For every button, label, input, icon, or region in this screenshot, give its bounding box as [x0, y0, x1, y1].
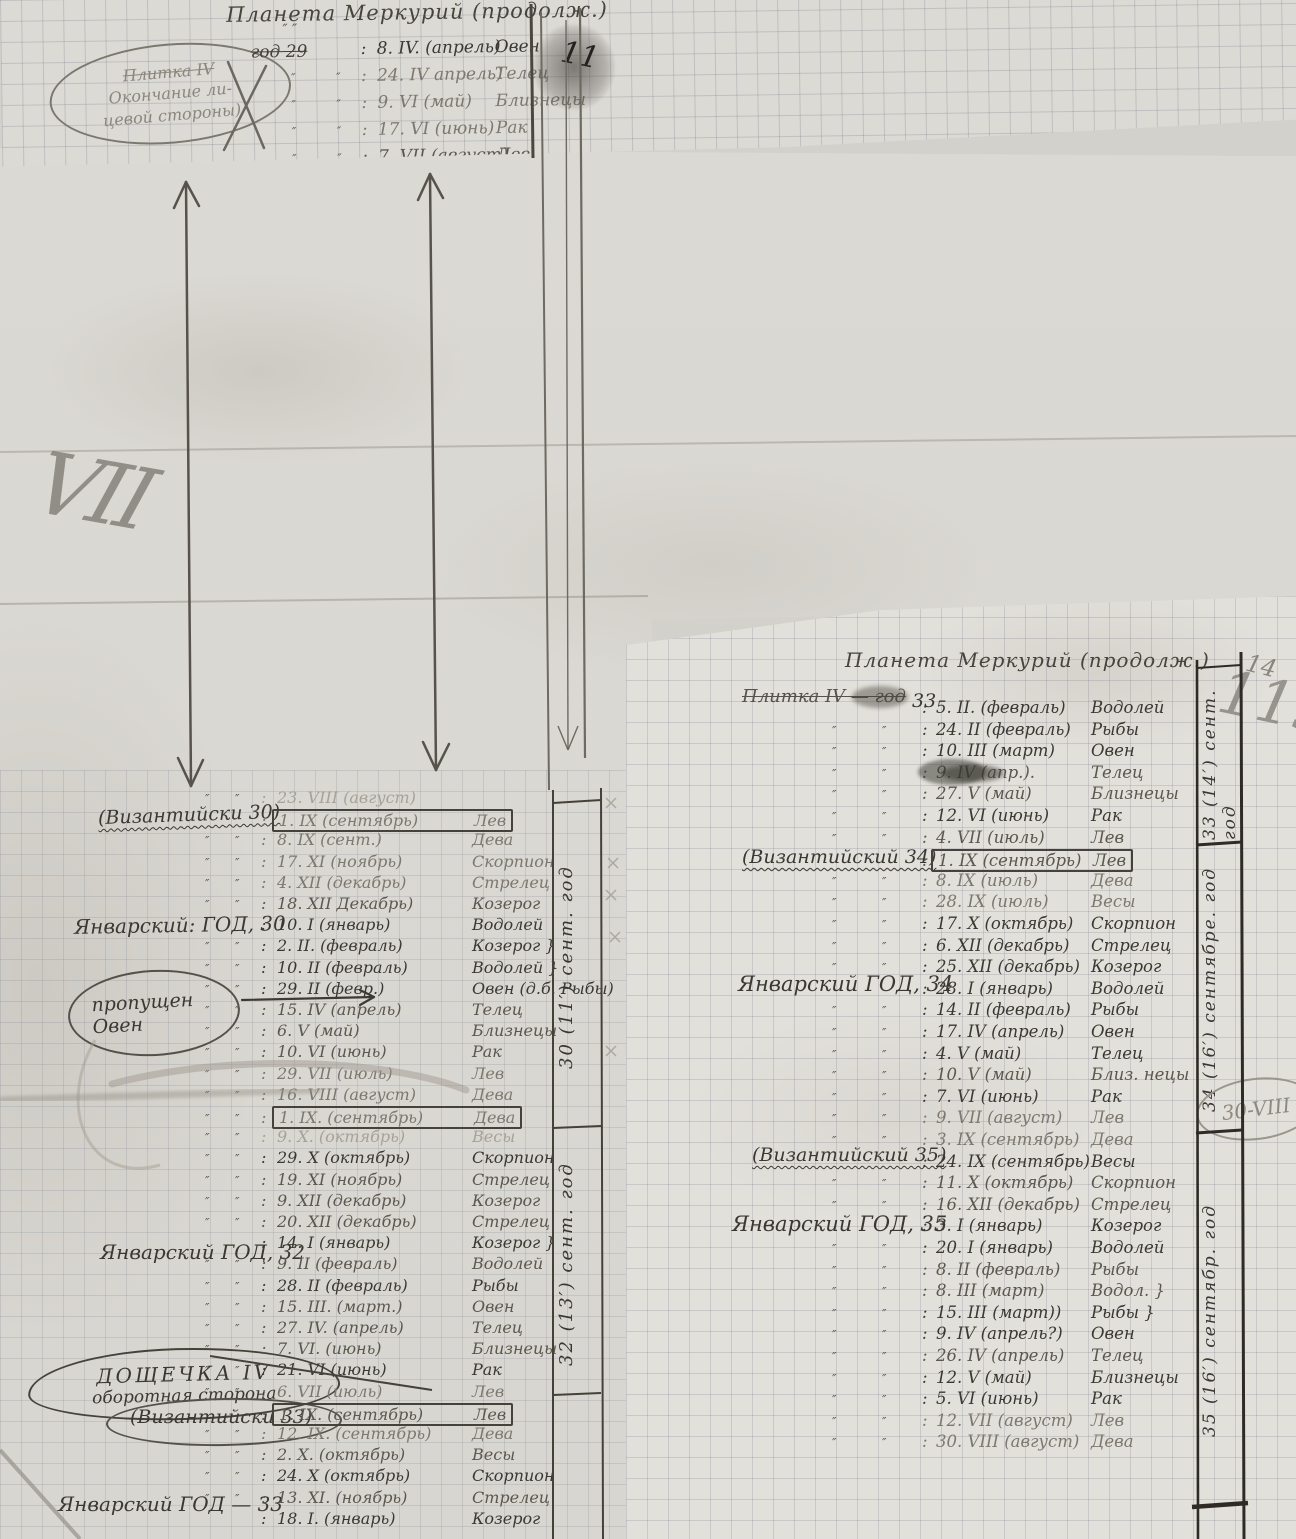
colon-separator: : — [922, 1216, 936, 1235]
ditto-mark: ″ — [882, 724, 922, 738]
colon-separator: : — [261, 1424, 277, 1443]
colon-separator: : — [922, 1346, 936, 1365]
table-row: ″″:10. V (май)Близ. нецы — [832, 1065, 1189, 1087]
zodiac-sign: Рыбы — [1091, 1000, 1139, 1019]
entry-date: 7. VI (июнь) — [936, 1087, 1091, 1106]
colon-separator: : — [922, 1195, 936, 1214]
entry: 3. I (январь)Козерог — [936, 1216, 1161, 1235]
zodiac-sign: Водолей — [1091, 1238, 1164, 1257]
ditto-mark: ″ — [882, 1004, 922, 1018]
entry: 17. IV (апрель)Овен — [936, 1022, 1135, 1041]
entry-date: 28. I (январь) — [936, 979, 1091, 998]
table-row: ″″:7. VI (июнь)Рак — [832, 1087, 1122, 1109]
zodiac-sign: Телец — [1091, 1346, 1144, 1365]
zodiac-sign: Овен — [472, 1297, 514, 1316]
ditto-mark: ″ — [235, 940, 261, 954]
ditto-mark: ″ — [205, 1131, 235, 1145]
table-row: :18. I. (январь)Козерог — [205, 1509, 540, 1530]
ditto-mark: ″ — [832, 875, 882, 889]
margin-label-year-30: 30 (11′) сент. год — [556, 812, 577, 1122]
zodiac-sign: Рак — [472, 1042, 502, 1061]
zodiac-sign: Стрелец — [472, 1170, 550, 1189]
ditto-mark: ″ — [235, 962, 261, 976]
ditto-mark: ″ — [235, 1046, 261, 1060]
entry-date: 8. IX (июль) — [936, 871, 1091, 890]
entry: 9. IV (апр.).Телец — [936, 763, 1144, 782]
colon-separator: : — [922, 806, 936, 825]
ditto-mark: ″ — [832, 918, 882, 932]
table-row: ″″:11. X (октябрь)Скорпион — [832, 1173, 1176, 1195]
entry: 17. XI (ноябрь)Скорпион — [277, 852, 554, 871]
colon-separator: : — [922, 828, 936, 847]
colon-separator: : — [362, 120, 378, 140]
table-row: ″″:9. IV (апр.).Телец — [832, 763, 1144, 785]
margin-label-year-34: 34 (16′) сентябре. год — [1200, 850, 1220, 1128]
ditto-mark: ″ — [832, 1328, 882, 1342]
entry: 12. V (май)Близнецы — [936, 1368, 1179, 1387]
zodiac-sign: Близнецы — [1091, 784, 1179, 803]
zodiac-sign: Дева — [1091, 871, 1134, 890]
ditto-mark: ″ — [832, 1372, 882, 1386]
ditto-mark: ″ — [832, 1177, 882, 1191]
table-row: :28. I (январь)Водолей — [832, 979, 1164, 1001]
ditto-mark: ″ — [832, 1393, 882, 1407]
entry: 15. IV (апрель)Телец — [277, 1000, 523, 1019]
ditto-mark: ″ — [205, 1112, 235, 1126]
colon-separator: : — [361, 39, 377, 59]
table-row: :10. I (январь)Водолей — [205, 915, 543, 936]
ditto-mark: ″ — [832, 1199, 882, 1213]
entry-date: 19. XI (ноябрь) — [277, 1170, 472, 1189]
entry: 9. II (февраль)Водолей — [277, 1254, 543, 1273]
table-row: ″″:19. XI (ноябрь)Стрелец — [205, 1170, 550, 1191]
ditto-mark: ″ — [882, 788, 922, 802]
table-row: ″″:12. VII (август)Лев — [832, 1411, 1124, 1433]
zodiac-sign: Водолей — [1091, 698, 1164, 717]
colon-separator: : — [261, 1021, 277, 1040]
entry-date: 17. XI (ноябрь) — [277, 852, 472, 871]
table-row: ″″:2. X. (октябрь)Весы — [205, 1445, 515, 1466]
entry: 3. IX (сентябрь)Дева — [936, 1130, 1134, 1149]
entry-date: 9. VI (май) — [377, 91, 495, 113]
ditto-mark: ″ — [205, 1470, 235, 1484]
zodiac-sign: Скорпион — [472, 852, 554, 871]
entry: 10. III (март)Овен — [936, 741, 1135, 760]
entry-date: 18. XII Декабрь) — [277, 894, 472, 913]
table-row: ″″:20. I (январь)Водолей — [832, 1238, 1164, 1260]
zodiac-sign: Стрелец — [472, 873, 550, 892]
zodiac-sign: Скорпион — [472, 1148, 554, 1167]
ditto-mark: ″ — [205, 1258, 235, 1272]
table-row: ″″:13. XI. (ноябрь)Стрелец — [205, 1488, 550, 1509]
zodiac-sign: Телец — [472, 1000, 523, 1019]
table-row: ″″:8. III (март)Водол. } — [832, 1281, 1165, 1303]
colon-separator: : — [261, 1000, 277, 1019]
ditto-mark: ″ — [832, 1242, 882, 1256]
entry: 6. XII (декабрь)Стрелец — [936, 936, 1171, 955]
zodiac-sign: Овен — [1091, 1022, 1135, 1041]
zodiac-sign: Дева — [1091, 1130, 1134, 1149]
entry: 2. II. (февраль)Козерог } — [277, 936, 555, 955]
ditto-mark: ″ — [832, 832, 882, 846]
entry-date: 23. VIII (август) — [277, 788, 472, 807]
colon-separator: : — [922, 1173, 936, 1192]
colon-separator: : — [922, 1281, 936, 1300]
colon-separator: : — [922, 1108, 936, 1127]
ditto-mark: ″ — [205, 1195, 235, 1209]
ditto-mark: ″ — [235, 1280, 261, 1294]
entry-date: 20. I (январь) — [936, 1238, 1091, 1257]
colon-separator: : — [261, 873, 277, 892]
entry-date: 1. IX. (сентябрь) — [279, 1108, 474, 1127]
entry-date: 28. II (февраль) — [277, 1276, 472, 1295]
table-row: ″″:28. II (февраль)Рыбы — [205, 1276, 519, 1297]
entry-date: 13. XI. (ноябрь) — [277, 1488, 472, 1507]
entry: 12. VI (июнь)Рак — [936, 806, 1122, 825]
colon-separator: : — [922, 741, 936, 760]
colon-separator: : — [922, 1065, 936, 1084]
colon-separator: : — [261, 1233, 277, 1252]
entry: 29. VII (июль)Лев — [277, 1064, 504, 1083]
entry-date: 9. II (февраль) — [277, 1254, 472, 1273]
ditto-mark: ″ — [205, 1343, 235, 1357]
colon-separator: : — [922, 1130, 936, 1149]
colon-separator: : — [922, 914, 936, 933]
ditto-mark: ″ — [235, 1112, 261, 1126]
entry-date: 4. XII (декабрь) — [277, 873, 472, 892]
colon-separator: : — [361, 66, 377, 86]
zodiac-sign: Весы — [1091, 1152, 1136, 1171]
entry-date: 10. III (март) — [936, 741, 1091, 760]
entry-date: 17. VI (июнь) — [378, 118, 496, 140]
zodiac-sign: Дева — [472, 1085, 513, 1104]
colon-separator: : — [922, 1389, 936, 1408]
zodiac-sign: Рак — [472, 1360, 502, 1379]
ditto-mark: ″ — [235, 1322, 261, 1336]
entry: 20. I (январь)Водолей — [936, 1238, 1164, 1257]
ditto-mark: ″ — [832, 940, 882, 954]
entry: 4. XII (декабрь)Стрелец — [277, 873, 550, 892]
table-row: ″″:29. II (февр.)Овен (д.б. Рыбы) — [205, 979, 614, 1000]
colon-separator: : — [922, 871, 936, 890]
zodiac-sign: Телец — [472, 1318, 523, 1337]
entry: 10. II (февраль)Водолей } — [277, 958, 558, 977]
entry-date: 5. II. (февраль) — [936, 698, 1091, 717]
entry: 7. VI (июнь)Рак — [936, 1087, 1122, 1106]
table-row: ″″:14. II (февраль)Рыбы — [832, 1000, 1139, 1022]
ditto-mark: ″ — [235, 1449, 261, 1463]
entry: 12. IX. (сентябрь)Дева — [277, 1424, 513, 1443]
ditto-mark: ″ — [205, 1025, 235, 1039]
entry-date: 12. VI (июнь) — [936, 806, 1091, 825]
ditto-mark: ″ — [882, 918, 922, 932]
entry: 30. VIII (август)Дева — [936, 1432, 1134, 1451]
zodiac-sign: Рыбы — [1091, 1260, 1139, 1279]
ditto-mark: ″ — [235, 1301, 261, 1315]
colon-separator: : — [261, 1148, 277, 1167]
table-row: ″″:16. VIII (август)Дева — [205, 1085, 513, 1106]
ditto-mark: ″ — [832, 1285, 882, 1299]
entry: 24. IV апрель)Телец — [377, 63, 549, 85]
ditto-mark: ″ — [235, 1174, 261, 1188]
entry-date: 2. X. (октябрь) — [277, 1445, 472, 1464]
entry: 5. VI (июнь)Рак — [936, 1389, 1122, 1408]
top-fragment-sheet: Планета Меркурий (продолж.) Плитка IV Ок… — [0, 0, 1296, 172]
table-row: ″″:5. VI (июнь)Рак — [832, 1389, 1122, 1411]
ditto-mark: ″ — [235, 1364, 261, 1378]
ditto-mark: ″ — [882, 1048, 922, 1062]
entry: 8. IV. (апрель)Овен — [377, 36, 540, 58]
table-row: ″″:6. VII (июль)Лев — [205, 1382, 504, 1403]
ditto-mark: ″ — [882, 1177, 922, 1191]
table-row: ″″:24. IV апрель)Телец — [291, 63, 550, 94]
table-row: ″″:15. III (март))Рыбы } — [832, 1303, 1155, 1325]
entry-date: 8. IV. (апрель) — [377, 37, 495, 59]
entry: 2. X. (октябрь)Весы — [277, 1445, 515, 1464]
ditto-mark: ″ — [832, 1069, 882, 1083]
entry: 27. V (май)Близнецы — [936, 784, 1179, 803]
ditto-mark: ″ — [205, 1449, 235, 1463]
table-row: :1. IX (сентябрь)Лев — [205, 809, 513, 830]
entry: 26. IV (апрель)Телец — [936, 1346, 1144, 1365]
table-row: ″″:10. II (февраль)Водолей } — [205, 958, 558, 979]
table-row: ″″:27. V (май)Близнецы — [832, 784, 1179, 806]
ditto-mark: ″ — [882, 1372, 922, 1386]
colon-separator: : — [922, 1411, 936, 1430]
ditto-mark: ″ — [235, 1152, 261, 1166]
zodiac-sign: Козерог — [472, 894, 540, 913]
table-row: ″″:17. VI (июнь)Рак — [292, 118, 528, 148]
table-row: ″″:4. VII (июль)Лев — [832, 828, 1124, 850]
table-row: ″″:30. VIII (август)Дева — [832, 1432, 1134, 1454]
colon-separator: : — [922, 1087, 936, 1106]
table-row: ″″:7. VI. (июнь)Близнецы — [205, 1339, 557, 1360]
colon-separator: : — [361, 93, 377, 113]
ditto-mark: ″ — [235, 983, 261, 997]
entry: 25. XII (декабрь)Козерог — [936, 957, 1161, 976]
entry: 1. IX (сентябрь)Лев — [272, 809, 513, 832]
colon-separator: : — [922, 936, 936, 955]
ditto-mark: ″ — [832, 1436, 882, 1450]
entry-date: 15. IV (апрель) — [277, 1000, 472, 1019]
colon-separator: : — [261, 1276, 277, 1295]
entry-date: 12. V (май) — [936, 1368, 1091, 1387]
entry: 20. XII (декабрь)Стрелец — [277, 1212, 550, 1231]
zodiac-sign: Скорпион — [1091, 914, 1176, 933]
table-row: ″″:24. II (февраль)Рыбы — [832, 720, 1139, 742]
entry: 24. II (февраль)Рыбы — [936, 720, 1139, 739]
entry-date: 28. IX (июль) — [936, 892, 1091, 911]
colon-separator: : — [922, 698, 936, 717]
table-row: ″″:12. IX. (сентябрь)Дева — [205, 1424, 513, 1445]
entry: 27. IV. (апрель)Телец — [277, 1318, 523, 1337]
table-row: ″″:6. XII (декабрь)Стрелец — [832, 936, 1171, 958]
colon-separator: : — [261, 1339, 277, 1358]
table-row: ″″:18. XII Декабрь)Козерог — [205, 894, 540, 915]
zodiac-sign: Телец — [1091, 1044, 1144, 1063]
table-row: ″″:9. X. (октябрь)Весы — [205, 1127, 515, 1148]
ditto-mark: ″ — [832, 788, 882, 802]
table-row: ″″:1. IX. (сентябрь)Дева — [205, 1106, 522, 1127]
table-row: ″″:10. VI (июнь)Рак — [205, 1042, 502, 1063]
table-row: ″″:23. VIII (август) — [205, 788, 472, 809]
ditto-mark: ″ — [882, 1112, 922, 1126]
zodiac-sign: Дева — [472, 830, 513, 849]
colon-separator: : — [261, 1509, 277, 1528]
ditto-mark: ″ — [832, 810, 882, 824]
entry: 23. VIII (август) — [277, 788, 472, 807]
table-row: ″″:8. II (февраль)Рыбы — [832, 1260, 1139, 1282]
ditto-mark: ″ — [882, 1436, 922, 1450]
table-row: ″″:27. IV. (апрель)Телец — [205, 1318, 523, 1339]
ditto-mark: ″ — [205, 940, 235, 954]
ditto-mark: ″ — [832, 1112, 882, 1126]
ditto-mark: ″ — [205, 1152, 235, 1166]
table-row: ″″:12. VI (июнь)Рак — [832, 806, 1122, 828]
zodiac-sign: Лев — [474, 811, 506, 830]
table-row: ″″:3. IX (сентябрь)Дева — [832, 1130, 1134, 1152]
ditto-mark: ″ — [882, 1328, 922, 1342]
entry-date: 18. I. (январь) — [277, 1509, 472, 1528]
entry: 14. II (февраль)Рыбы — [936, 1000, 1139, 1019]
ditto-mark: ″ — [832, 1026, 882, 1040]
ditto-mark: ″ — [832, 961, 882, 975]
entry: 18. XII Декабрь)Козерог — [277, 894, 540, 913]
ditto-mark: ″ — [882, 767, 922, 781]
zodiac-sign: Лев — [1091, 1411, 1124, 1430]
table-row: ″″:15. III. (март.)Овен — [205, 1297, 514, 1318]
zodiac-sign: Козерог — [1091, 957, 1161, 976]
entry-date: 3. I (январь) — [936, 1216, 1091, 1235]
zodiac-sign: Козерог — [472, 1509, 540, 1528]
entry-date: 21. VI (июнь) — [277, 1360, 472, 1379]
entry-date: 10. II (февраль) — [277, 958, 472, 977]
ditto-mark: ″ — [882, 832, 922, 846]
colon-separator: : — [922, 892, 936, 911]
colon-separator: : — [261, 1085, 277, 1104]
entry: 24. X (октябрь)Скорпион — [277, 1466, 554, 1485]
entry-date: 17. X (октябрь) — [936, 914, 1091, 933]
ditto-mark: ″ — [235, 1131, 261, 1145]
ditto-mark: ″ — [205, 1004, 235, 1018]
ditto-mark: ″ — [205, 1280, 235, 1294]
zodiac-sign: Близнецы — [472, 1339, 557, 1358]
entry-date: 9. VII (август) — [936, 1108, 1091, 1127]
ditto-mark: ″ — [205, 834, 235, 848]
zodiac-sign: Дева — [472, 1424, 513, 1443]
zodiac-sign: Козерог — [472, 1191, 540, 1210]
ditto-mark: ″ — [205, 1492, 235, 1506]
table-row: ″″:21. VI (июнь)Рак — [205, 1360, 502, 1381]
ditto-mark: ″ — [832, 1048, 882, 1062]
ditto-mark: ″ — [882, 745, 922, 759]
colon-separator: : — [261, 788, 277, 807]
ditto-mark: ″ — [235, 1428, 261, 1442]
entry-date: 8. II (февраль) — [936, 1260, 1091, 1279]
zodiac-sign: Водолей — [1091, 979, 1164, 998]
entry: 17. VI (июнь)Рак — [378, 118, 528, 140]
table-row: ″″:17. XI (ноябрь)Скорпион — [205, 852, 554, 873]
zodiac-sign: Стрелец — [472, 1488, 550, 1507]
ditto-mark: ″ — [205, 792, 235, 806]
ditto-mark: ″ — [832, 1350, 882, 1364]
zodiac-sign: Рыбы } — [1091, 1303, 1155, 1322]
ditto-mark: ″ — [291, 70, 336, 85]
entry: 7. VI. (июнь)Близнецы — [277, 1339, 557, 1358]
ditto-mark: ″ — [882, 810, 922, 824]
zodiac-sign: Лев — [1091, 828, 1124, 847]
colon-separator: : — [261, 894, 277, 913]
ditto-mark: ″ — [832, 1415, 882, 1429]
ditto-mark: ″ — [205, 1046, 235, 1060]
table-row: ″″:9. VII (август)Лев — [832, 1108, 1124, 1130]
ditto-mark: ″ — [205, 877, 235, 891]
table-row: :24. IX (сентябрь)Весы — [832, 1152, 1136, 1174]
zodiac-sign: Овен — [1091, 1324, 1135, 1343]
entry: 5. II. (февраль)Водолей — [936, 698, 1164, 717]
table-row: ″″:6. V (май)Близнецы — [205, 1021, 557, 1042]
zodiac-sign: Стрелец — [1091, 1195, 1171, 1214]
ditto-mark: ″ — [235, 1068, 261, 1082]
entry-date: 6. V (май) — [277, 1021, 472, 1040]
entry-date: 10. V (май) — [936, 1065, 1091, 1084]
ditto-mark: ″ — [235, 1216, 261, 1230]
colon-separator: : — [922, 1368, 936, 1387]
ditto-mark: ″ — [882, 940, 922, 954]
colon-separator: : — [922, 957, 936, 976]
ditto-mark: ″ — [882, 1285, 922, 1299]
ditto-mark: ″ — [882, 1026, 922, 1040]
entry: 18. I. (январь)Козерог — [277, 1509, 540, 1528]
ditto-mark: ″ — [882, 1393, 922, 1407]
colon-separator: : — [261, 1127, 277, 1146]
entry: 17. X (октябрь)Скорпион — [936, 914, 1176, 933]
zodiac-sign: Лев — [1091, 1108, 1124, 1127]
colon-separator: : — [261, 1191, 277, 1210]
ditto-mark: ″ — [832, 745, 882, 759]
zodiac-sign: Дева — [474, 1108, 515, 1127]
table-row: ″″:2. II. (февраль)Козерог } — [205, 936, 555, 957]
entry-date: 9. X. (октябрь) — [277, 1127, 472, 1146]
ditto-mark: ″ — [235, 1258, 261, 1272]
colon-separator: : — [922, 763, 936, 782]
colon-separator: : — [261, 1445, 277, 1464]
zodiac-sign: Скорпион — [1091, 1173, 1176, 1192]
ditto-mark: ″ — [882, 1069, 922, 1083]
entry-date: 12. VII (август) — [936, 1411, 1091, 1430]
entry: 19. XI (ноябрь)Стрелец — [277, 1170, 550, 1189]
entry: 28. IX (июль)Весы — [936, 892, 1136, 911]
colon-separator: : — [261, 1318, 277, 1337]
ditto-mark: ″ — [205, 1386, 235, 1400]
colon-separator: : — [922, 1152, 936, 1171]
ditto-mark: ″ — [882, 1415, 922, 1429]
entry-date: 8. IX (сент.) — [277, 830, 472, 849]
ditto-mark: ″ — [205, 962, 235, 976]
entry-date: 9. IV (апрель?) — [936, 1324, 1091, 1343]
zodiac-sign: Козерог — [1091, 1216, 1161, 1235]
zodiac-sign: Весы — [472, 1445, 515, 1464]
entry: 1. IX (сентябрь)Лев — [931, 849, 1133, 872]
entry-date: 6. XII (декабрь) — [936, 936, 1091, 955]
table-row: ″″:8. IX (сент.)Дева — [205, 830, 513, 851]
ditto-mark: ″ — [291, 97, 336, 112]
table-row: ″″:9. IV (апрель?)Овен — [832, 1324, 1135, 1346]
entry-date: 15. III (март)) — [936, 1303, 1091, 1322]
entry: 9. X. (октябрь)Весы — [277, 1127, 515, 1146]
ditto-mark: ″ — [235, 834, 261, 848]
entry-date: 6. VII (июль) — [277, 1382, 472, 1401]
